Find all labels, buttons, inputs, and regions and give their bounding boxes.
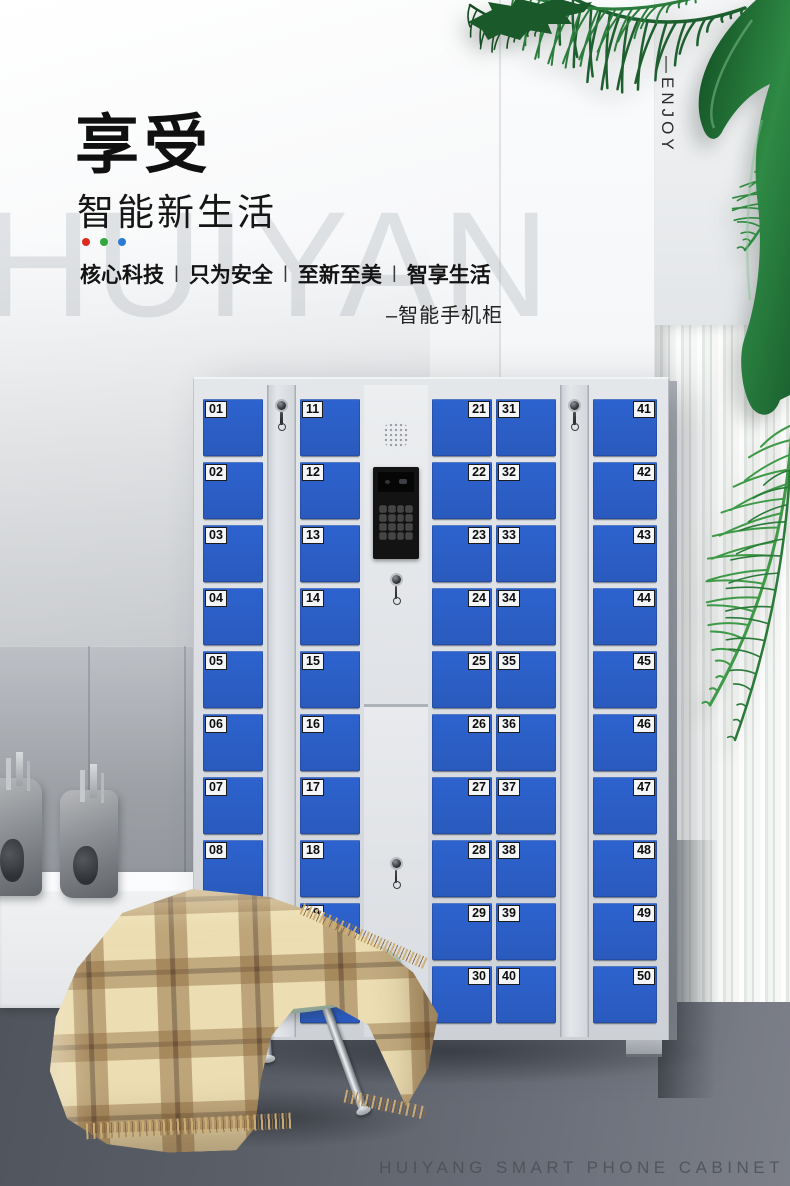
right-wall: [655, 0, 790, 340]
door-number-label: 25: [468, 653, 490, 670]
locker-door: 06: [203, 714, 263, 771]
door-number-label: 34: [498, 590, 520, 607]
door-number-label: 48: [633, 842, 655, 859]
door-number-label: 33: [498, 527, 520, 544]
door-number-label: 42: [633, 464, 655, 481]
locker-door: 29: [432, 903, 492, 960]
lock-icon: [570, 401, 579, 410]
locker-door: 50: [593, 966, 657, 1023]
tagline: 核心科技 | 只为安全 | 至新至美 | 智享生活: [80, 259, 491, 289]
keypad-key: [398, 506, 404, 512]
locker-door: 39: [496, 903, 556, 960]
door-number-label: 37: [498, 779, 520, 796]
locker-door: 01: [203, 399, 263, 456]
page-subtitle: 智能新生活: [77, 182, 277, 236]
locker-door: 37: [496, 777, 556, 834]
lock-icon: [392, 575, 401, 584]
locker-door: 49: [593, 903, 657, 960]
locker-door: 35: [496, 651, 556, 708]
blue-dot-icon: [118, 238, 126, 246]
footer-caption: HUIYANG SMART PHONE CABINET: [379, 1158, 784, 1178]
door-number-label: 03: [205, 527, 227, 544]
door-number-label: 05: [205, 653, 227, 670]
tagline-item: 核心科技: [80, 259, 164, 289]
door-number-label: 04: [205, 590, 227, 607]
key-icon: [395, 870, 398, 883]
lock-icon: [392, 859, 401, 868]
door-number-label: 27: [468, 779, 490, 796]
product-note: –智能手机柜: [386, 299, 503, 328]
locker-door: 26: [432, 714, 492, 771]
door-number-label: 46: [633, 716, 655, 733]
door-number-label: 08: [205, 842, 227, 859]
locker-door: 41: [593, 399, 657, 456]
lock-icon: [277, 401, 286, 410]
locker-door: 40: [496, 966, 556, 1023]
door-number-label: 18: [302, 842, 324, 859]
locker-door: 31: [496, 399, 556, 456]
locker-door: 27: [432, 777, 492, 834]
locker-door: 11: [300, 399, 360, 456]
locker-door: 25: [432, 651, 492, 708]
keypad-key: [398, 533, 404, 539]
door-number-label: 31: [498, 401, 520, 418]
door-number-label: 21: [468, 401, 490, 418]
key-icon: [280, 412, 283, 425]
locker-door: 34: [496, 588, 556, 645]
locker-door: 22: [432, 462, 492, 519]
door-number-label: 23: [468, 527, 490, 544]
keypad-key: [380, 533, 386, 539]
locker-door: 07: [203, 777, 263, 834]
locker-door: 02: [203, 462, 263, 519]
tagline-item: 只为安全: [189, 259, 273, 289]
control-panel: [373, 467, 419, 559]
keypad-key: [380, 515, 386, 521]
door-number-label: 50: [633, 968, 655, 985]
locker-door: 44: [593, 588, 657, 645]
lockset: [392, 859, 401, 883]
door-number-label: 01: [205, 401, 227, 418]
locker-door: 45: [593, 651, 657, 708]
door-number-label: 49: [633, 905, 655, 922]
locker-door: 43: [593, 525, 657, 582]
door-number-label: 11: [302, 401, 323, 418]
accent-dots: [82, 238, 126, 246]
locker-door: 28: [432, 840, 492, 897]
lockset: [277, 401, 286, 425]
locker-door: 21: [432, 399, 492, 456]
door-number-label: 16: [302, 716, 324, 733]
cabinet-foot: [626, 1040, 662, 1057]
panel-keypad: [378, 506, 414, 539]
door-number-label: 44: [633, 590, 655, 607]
door-number-label: 41: [633, 401, 655, 418]
locker-door: 14: [300, 588, 360, 645]
door-number-label: 24: [468, 590, 490, 607]
cabinet-side-panel: [669, 381, 677, 1040]
tagline-item: 智享生活: [407, 259, 491, 289]
tagline-separator: |: [392, 264, 397, 284]
locker-door: 03: [203, 525, 263, 582]
door-number-label: 17: [302, 779, 324, 796]
stone-vase: [0, 778, 42, 896]
locker-door: 33: [496, 525, 556, 582]
enjoy-vertical-text: —ENJOY: [657, 56, 677, 154]
door-number-label: 07: [205, 779, 227, 796]
locker-door: 16: [300, 714, 360, 771]
green-dot-icon: [100, 238, 108, 246]
stone-vase: [60, 790, 118, 898]
keypad-key: [380, 524, 386, 530]
door-number-label: 35: [498, 653, 520, 670]
door-number-label: 43: [633, 527, 655, 544]
locker-door: 12: [300, 462, 360, 519]
red-dot-icon: [82, 238, 90, 246]
locker-door: 13: [300, 525, 360, 582]
locker-door: 24: [432, 588, 492, 645]
door-number-label: 13: [302, 527, 324, 544]
door-number-label: 32: [498, 464, 520, 481]
poster: HUIYAN HUIYANG SMART PHONE CABINET 01020…: [0, 0, 790, 1186]
lockset: [570, 401, 579, 425]
tagline-item: 至新至美: [298, 259, 382, 289]
locker-door: 15: [300, 651, 360, 708]
keypad-key: [380, 506, 386, 512]
key-icon: [395, 586, 398, 599]
page-title: 享受: [75, 94, 213, 186]
door-number-label: 29: [468, 905, 490, 922]
door-number-label: 45: [633, 653, 655, 670]
control-top-door: [364, 385, 428, 707]
keypad-key: [406, 533, 412, 539]
lock-strip-column: [560, 385, 589, 1037]
door-number-label: 30: [468, 968, 490, 985]
keypad-key: [398, 515, 404, 521]
keypad-key: [389, 506, 395, 512]
speaker-grille-icon: [382, 421, 410, 449]
door-number-label: 15: [302, 653, 324, 670]
locker-door: 48: [593, 840, 657, 897]
tagline-separator: |: [174, 264, 179, 284]
tagline-separator: |: [283, 264, 288, 284]
door-number-label: 14: [302, 590, 324, 607]
door-number-label: 28: [468, 842, 490, 859]
door-number-label: 12: [302, 464, 324, 481]
keypad-key: [406, 524, 412, 530]
door-number-label: 40: [498, 968, 520, 985]
locker-door: 17: [300, 777, 360, 834]
door-number-label: 22: [468, 464, 490, 481]
locker-door: 23: [432, 525, 492, 582]
locker-door: 42: [593, 462, 657, 519]
door-number-label: 36: [498, 716, 520, 733]
lockset: [392, 575, 401, 599]
locker-door: 32: [496, 462, 556, 519]
keypad-key: [406, 515, 412, 521]
locker-door: 30: [432, 966, 492, 1023]
keypad-key: [398, 524, 404, 530]
door-number-label: 26: [468, 716, 490, 733]
door-column: 21222324252627282930: [432, 385, 492, 1037]
door-column: 41424344454647484950: [593, 385, 657, 1037]
keypad-key: [389, 515, 395, 521]
locker-door: 38: [496, 840, 556, 897]
keypad-key: [406, 506, 412, 512]
door-number-label: 02: [205, 464, 227, 481]
keypad-key: [389, 524, 395, 530]
door-number-label: 47: [633, 779, 655, 796]
locker-door: 18: [300, 840, 360, 897]
locker-door: 36: [496, 714, 556, 771]
locker-door: 08: [203, 840, 263, 897]
door-number-label: 06: [205, 716, 227, 733]
door-number-label: 39: [498, 905, 520, 922]
keypad-key: [389, 533, 395, 539]
key-icon: [573, 412, 576, 425]
locker-door: 05: [203, 651, 263, 708]
locker-door: 47: [593, 777, 657, 834]
door-column: 31323334353637383940: [496, 385, 556, 1037]
locker-door: 46: [593, 714, 657, 771]
panel-camera-icon: [378, 472, 414, 492]
door-number-label: 38: [498, 842, 520, 859]
locker-door: 04: [203, 588, 263, 645]
